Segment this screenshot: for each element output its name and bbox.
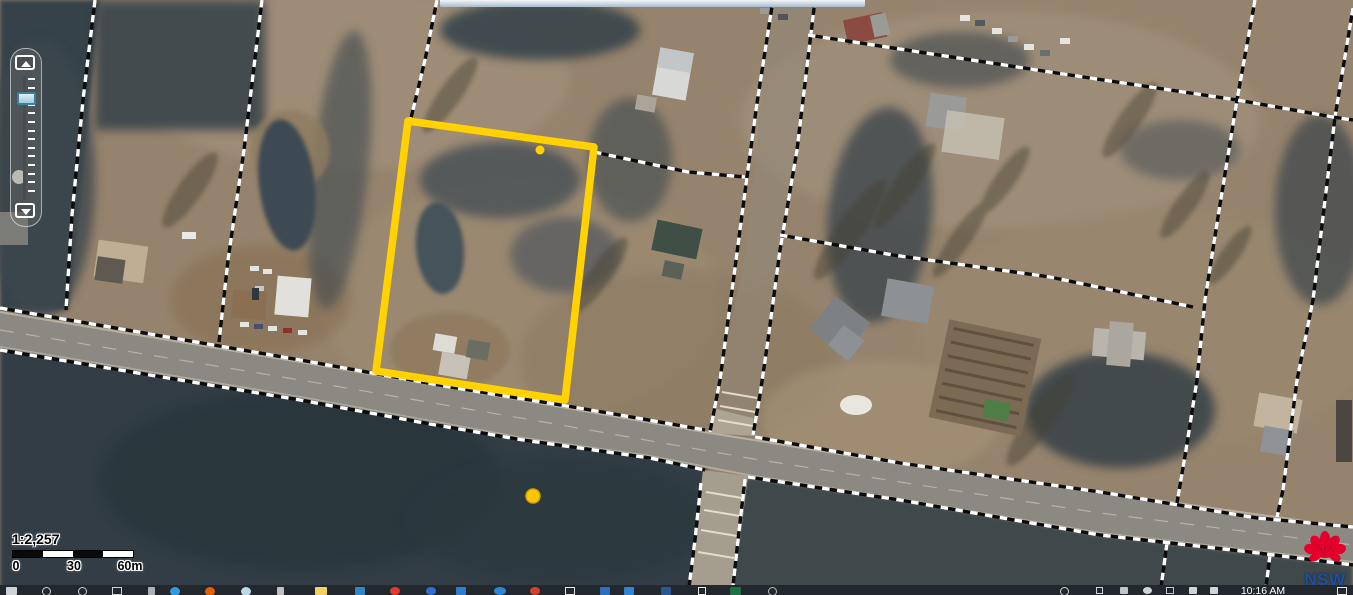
ie-icon[interactable] <box>241 587 251 595</box>
tray-globe-icon[interactable] <box>1060 587 1069 595</box>
blue-app3-icon[interactable] <box>624 587 634 595</box>
pen-icon[interactable] <box>148 587 155 595</box>
gray-ring-icon[interactable] <box>768 587 777 595</box>
zoom-tick <box>28 164 35 166</box>
excel-icon[interactable] <box>730 587 741 595</box>
desktop-screenshot: 1:2,257 0 30 60m <box>0 0 1353 595</box>
task-view-icon[interactable] <box>112 587 122 595</box>
zoom-tick <box>28 173 35 175</box>
zoom-tick <box>28 190 35 192</box>
zoom-tick <box>28 138 35 140</box>
scale-label-end: 60m <box>117 559 142 573</box>
zoom-tick <box>28 78 35 80</box>
tray-icon-2[interactable] <box>1143 587 1152 594</box>
scale-ratio-text: 1:2,257 <box>12 532 162 546</box>
blue-app-icon[interactable] <box>426 587 436 595</box>
tray-volume-icon[interactable] <box>1189 587 1197 594</box>
toolbar-bottom-edge <box>440 0 865 7</box>
zoom-tick <box>28 155 35 157</box>
zoom-tick <box>28 112 35 114</box>
scale-label-start: 0 <box>13 559 20 573</box>
taskbar-clock[interactable]: 10:16 AM <box>1228 585 1298 595</box>
zoom-out-button[interactable] <box>15 203 35 218</box>
zoom-tick <box>28 181 35 183</box>
zoom-tick <box>28 147 35 149</box>
scale-label-mid: 30 <box>67 559 81 573</box>
tray-icon-1[interactable] <box>1120 587 1128 594</box>
zoom-slider-control[interactable] <box>10 48 42 227</box>
zoom-slider-handle[interactable] <box>17 92 36 105</box>
nsw-government-logo: NSW <box>1299 527 1351 583</box>
tray-caret-icon[interactable] <box>1096 587 1103 594</box>
cortana-icon[interactable] <box>78 587 87 595</box>
scale-bar <box>12 550 134 558</box>
action-center-icon[interactable] <box>1337 587 1347 595</box>
folder-icon[interactable] <box>315 587 327 595</box>
window-outline-icon[interactable] <box>565 587 575 595</box>
word-icon[interactable] <box>661 587 671 595</box>
start-icon[interactable] <box>6 587 17 595</box>
blue-app2-icon[interactable] <box>600 587 610 595</box>
red-app-icon[interactable] <box>390 587 400 595</box>
blue-circles-icon[interactable] <box>494 587 506 595</box>
tray-icon-3[interactable] <box>1166 587 1174 594</box>
photos-icon[interactable] <box>355 587 365 595</box>
windows-taskbar[interactable]: 10:16 AM <box>0 585 1353 595</box>
search-icon[interactable] <box>42 587 51 595</box>
zoom-in-button[interactable] <box>15 55 35 70</box>
arrow-down-icon <box>21 209 31 215</box>
tray-network-icon[interactable] <box>1210 587 1218 594</box>
zoom-tick <box>28 121 35 123</box>
firefox-icon[interactable] <box>205 587 215 595</box>
point-marker-dot[interactable] <box>526 489 540 503</box>
zoom-tick <box>28 87 35 89</box>
waratah-icon <box>1299 527 1351 567</box>
aerial-map-canvas[interactable] <box>0 0 1353 595</box>
stylus-icon[interactable] <box>277 587 284 595</box>
map-scale-indicator: 1:2,257 0 30 60m <box>12 532 162 573</box>
red-white-icon[interactable] <box>530 587 540 595</box>
notepad-icon[interactable] <box>698 587 706 595</box>
parcel-vertex-dot <box>536 146 545 155</box>
edge-icon[interactable] <box>170 587 180 595</box>
scale-bar-labels: 0 30 60m <box>12 559 162 573</box>
blue-tile-icon[interactable] <box>456 587 466 595</box>
zoom-tick <box>28 130 35 132</box>
arrow-up-icon <box>21 61 31 67</box>
